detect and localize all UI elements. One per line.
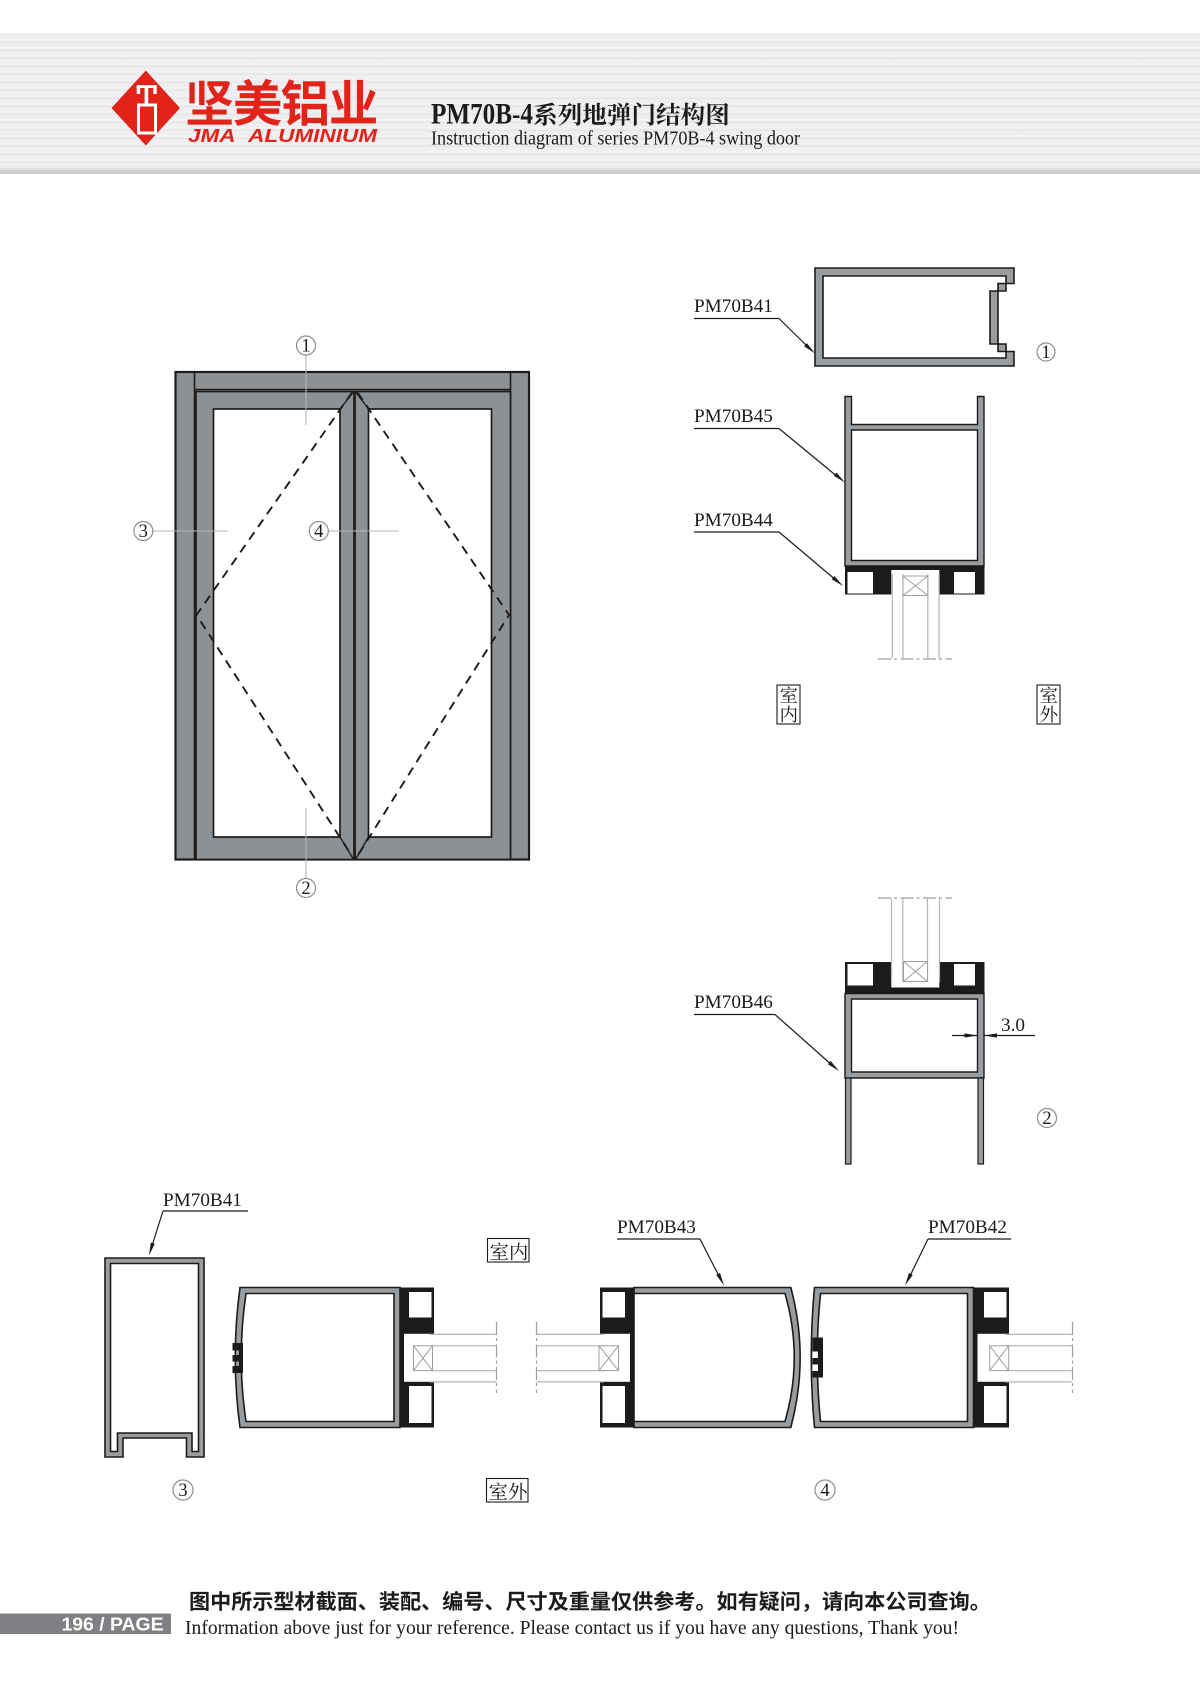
svg-text:PM70B45: PM70B45: [694, 406, 773, 427]
svg-text:PM70B44: PM70B44: [694, 510, 773, 531]
svg-text:196 / PAGE: 196 / PAGE: [62, 1614, 164, 1635]
svg-text:PM70B42: PM70B42: [928, 1217, 1007, 1238]
svg-text:3: 3: [139, 522, 148, 542]
svg-text:PM70B46: PM70B46: [694, 992, 773, 1013]
svg-text:PM70B41: PM70B41: [163, 1190, 242, 1211]
svg-text:PM70B41: PM70B41: [694, 296, 773, 317]
svg-text:PM70B-4: PM70B-4: [431, 99, 533, 131]
svg-text:1: 1: [1041, 343, 1050, 363]
svg-text:PM70B43: PM70B43: [617, 1217, 696, 1238]
svg-text:2: 2: [301, 879, 310, 899]
svg-text:2: 2: [1042, 1109, 1051, 1129]
svg-text:4: 4: [820, 1481, 829, 1501]
svg-text:4: 4: [314, 522, 323, 542]
svg-text:3.0: 3.0: [1001, 1015, 1025, 1036]
svg-text:Instruction diagram of series: Instruction diagram of series PM70B-4 sw…: [431, 128, 800, 150]
svg-text:JMA ALUMINIUM: JMA ALUMINIUM: [188, 125, 378, 146]
svg-text:Information above just for you: Information above just for your referenc…: [185, 1617, 959, 1639]
svg-text:3: 3: [178, 1481, 187, 1501]
svg-text:1: 1: [301, 337, 310, 357]
